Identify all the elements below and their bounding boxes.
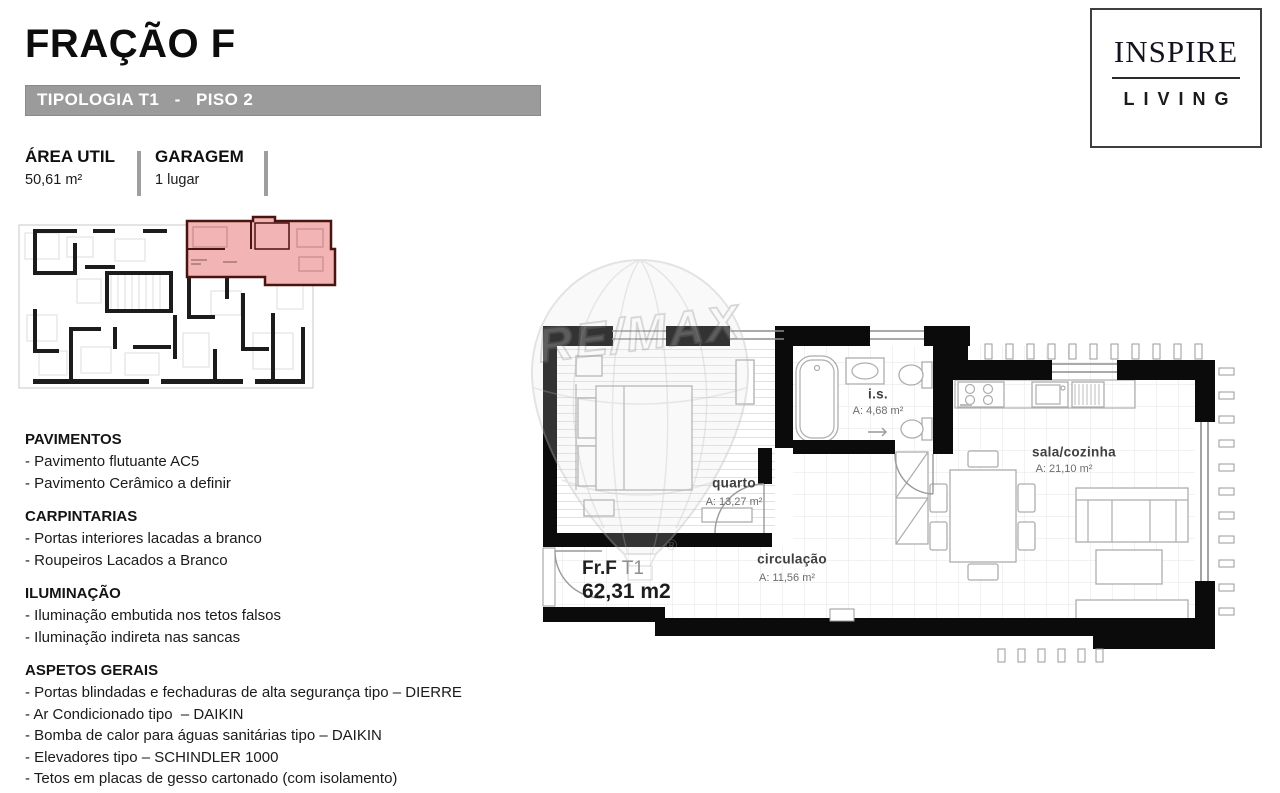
- unit-tag: Fr.F T1 62,31 m2: [582, 558, 671, 603]
- unit-type: T1: [617, 558, 644, 579]
- section-title: CARPINTARIAS: [25, 508, 530, 525]
- feature-section-pavimentos: PAVIMENTOS - Pavimento flutuante AC5 - P…: [25, 431, 530, 494]
- floor-plan: RE/MAX ® quarto A: 13,27 m² i.s. A: 4,68…: [540, 318, 1250, 663]
- wardrobe: [896, 452, 928, 544]
- feature-item: - Tetos em placas de gesso cartonado (co…: [25, 768, 530, 790]
- room-area-sala: A: 21,10 m²: [1036, 463, 1093, 475]
- summary-divider: [264, 151, 268, 196]
- key-plan: [15, 215, 345, 410]
- brand-logo: INSPIRE LIVING: [1090, 8, 1262, 148]
- room-area-circulacao: A: 11,56 m²: [759, 572, 815, 584]
- key-plan-drawing: [15, 215, 345, 405]
- feature-item: - Elevadores tipo – SCHINDLER 1000: [25, 747, 530, 769]
- room-label-sala: sala/cozinha: [1032, 445, 1116, 460]
- brand-logo-divider: [1112, 77, 1240, 79]
- floor-plan-drawing: RE/MAX ®: [540, 318, 1250, 663]
- unit-name: Fr.F: [582, 558, 617, 579]
- typology-bar-label: TIPOLOGIA T1 - PISO 2: [26, 86, 540, 114]
- section-title: PAVIMENTOS: [25, 431, 530, 448]
- feature-item: - Ar Condicionado tipo – DAIKIN: [25, 704, 530, 726]
- feature-item: - Iluminação embutida nos tetos falsos: [25, 605, 530, 627]
- feature-list: PAVIMENTOS - Pavimento flutuante AC5 - P…: [25, 431, 530, 793]
- watermark-registered-icon: ®: [666, 537, 677, 554]
- feature-item: - Bomba de calor para águas sanitárias t…: [25, 725, 530, 747]
- area-util-label: ÁREA UTIL: [25, 147, 115, 167]
- key-plan-highlight-unit: [187, 217, 335, 285]
- unit-total-area: 62,31 m2: [582, 581, 671, 603]
- feature-item: - Iluminação indireta nas sancas: [25, 627, 530, 649]
- summary-divider: [137, 151, 141, 196]
- room-area-is: A: 4,68 m²: [853, 405, 904, 417]
- section-title: ASPETOS GERAIS: [25, 662, 530, 679]
- page: FRAÇÃO F TIPOLOGIA T1 - PISO 2 ÁREA UTIL…: [0, 0, 1280, 793]
- page-title: FRAÇÃO F: [25, 22, 236, 67]
- feature-section-aspetos-gerais: ASPETOS GERAIS - Portas blindadas e fech…: [25, 662, 530, 790]
- typology-bar: TIPOLOGIA T1 - PISO 2: [25, 85, 541, 116]
- feature-item: - Pavimento Cerâmico a definir: [25, 473, 530, 495]
- room-label-circulacao: circulação: [757, 552, 827, 567]
- feature-item: - Roupeiros Lacados a Branco: [25, 550, 530, 572]
- feature-section-iluminacao: ILUMINAÇÃO - Iluminação embutida nos tet…: [25, 585, 530, 648]
- brand-logo-line2: LIVING: [1092, 89, 1260, 110]
- feature-item: - Pavimento flutuante AC5: [25, 451, 530, 473]
- room-label-is: i.s.: [868, 387, 888, 402]
- key-plan-stairs: [111, 273, 160, 309]
- garage-value: 1 lugar: [155, 172, 199, 188]
- area-util-value: 50,61 m²: [25, 172, 82, 188]
- feature-item: - Portas interiores lacadas a branco: [25, 528, 530, 550]
- room-area-quarto: A: 13,27 m²: [706, 496, 763, 508]
- feature-section-carpintarias: CARPINTARIAS - Portas interiores lacadas…: [25, 508, 530, 571]
- feature-item: - Portas blindadas e fechaduras de alta …: [25, 682, 530, 704]
- room-label-quarto: quarto: [712, 476, 756, 491]
- section-title: ILUMINAÇÃO: [25, 585, 530, 602]
- brand-logo-line1: INSPIRE: [1092, 34, 1260, 70]
- garage-label: GARAGEM: [155, 147, 244, 167]
